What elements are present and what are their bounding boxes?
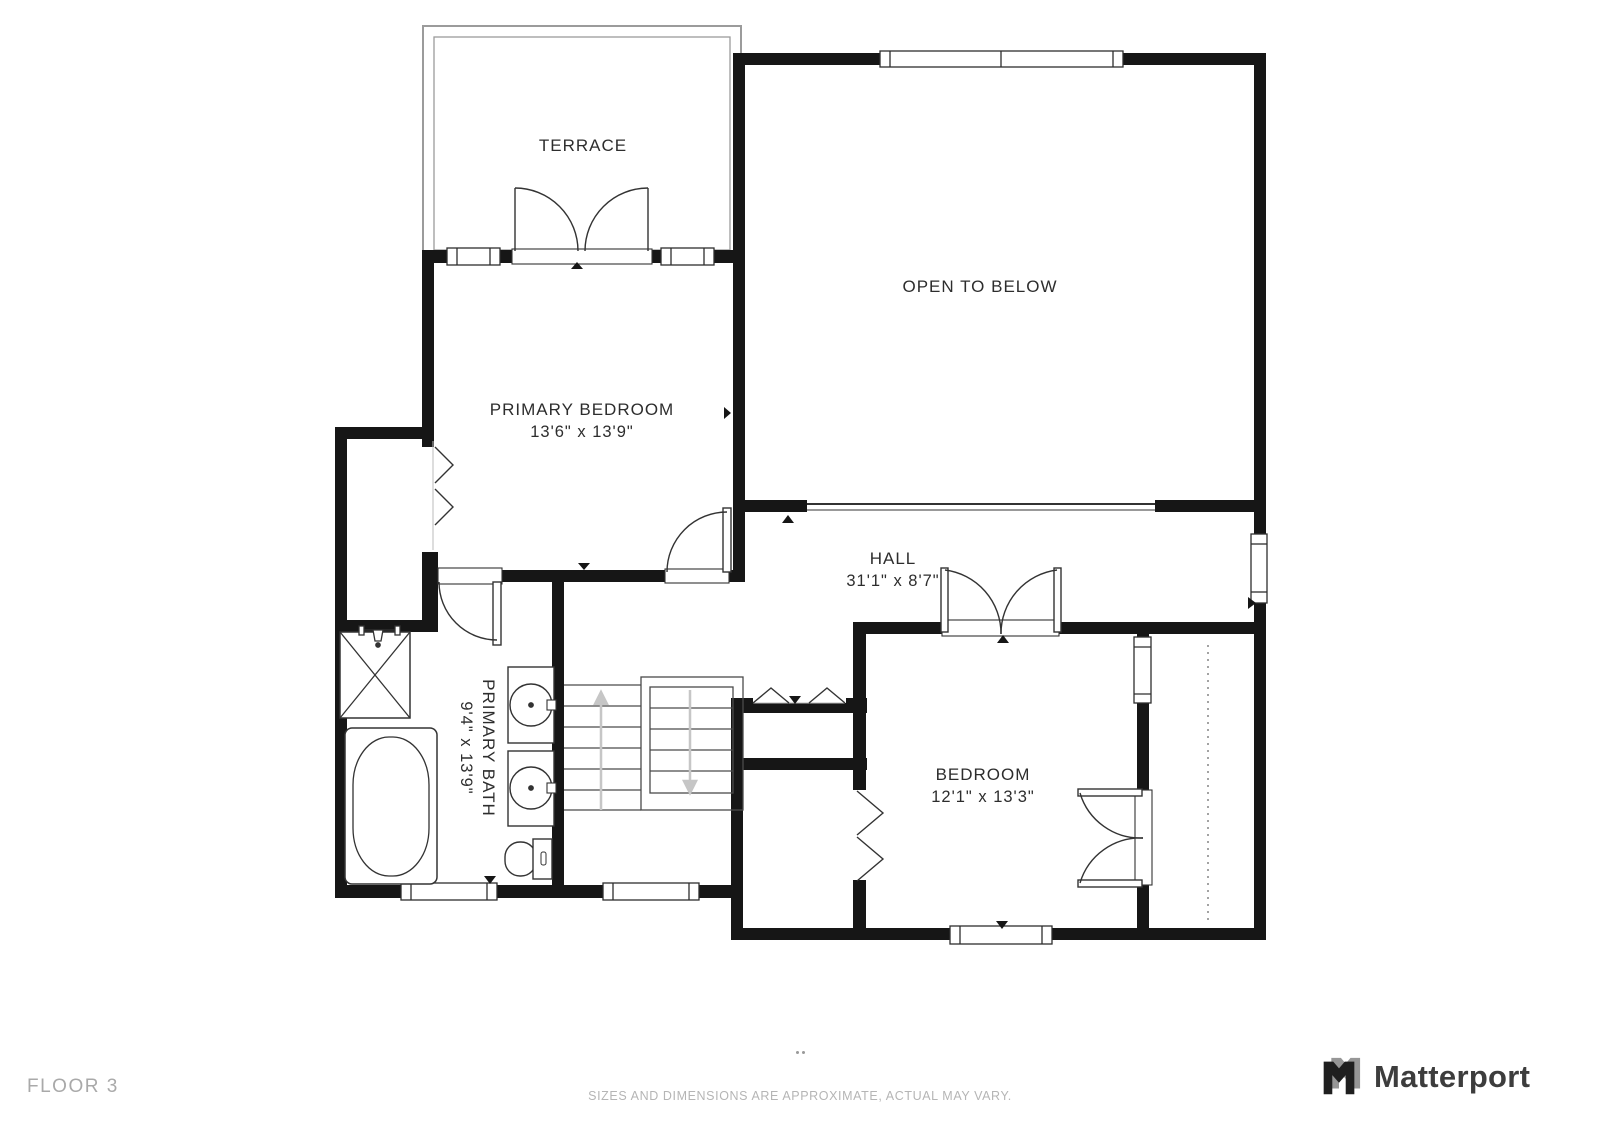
terrace-french-doors xyxy=(515,188,648,251)
matterport-logo-icon xyxy=(1316,1054,1362,1100)
floorplan-page: TERRACE PRIMARY BEDROOM 13'6" x 13'9" OP… xyxy=(0,0,1600,1130)
toilet xyxy=(505,839,552,879)
bathtub xyxy=(345,728,437,884)
primary-bath-door xyxy=(439,582,501,645)
bath-fixtures xyxy=(340,626,556,884)
primary-bath-label: PRIMARY BATH 9'4" x 13'9" xyxy=(455,679,499,817)
bath-window-left xyxy=(401,883,497,900)
bath-window-right xyxy=(603,883,699,900)
artifact-dot xyxy=(802,1051,805,1054)
primary-bath-dimensions: 9'4" x 13'9" xyxy=(455,679,477,817)
floorplan-drawing xyxy=(0,0,1600,1130)
hall-label: HALL 31'1" x 8'7" xyxy=(846,548,939,592)
bedroom-bottom-window xyxy=(950,926,1052,944)
staircase xyxy=(564,677,743,810)
matterport-wordmark: Matterport xyxy=(1374,1059,1530,1095)
artifact-dot xyxy=(796,1051,799,1054)
bedroom-closet-french-doors xyxy=(1078,789,1143,887)
terrace-label: TERRACE xyxy=(539,135,627,157)
bedroom-right-window xyxy=(1134,637,1151,703)
open-below-top-window xyxy=(880,51,1123,67)
hall-closet-accordion xyxy=(753,688,845,704)
primary-bedroom-door-jamb xyxy=(665,569,729,583)
primary-bedroom-dimensions: 13'6" x 13'9" xyxy=(490,421,674,443)
vanity-sink-1 xyxy=(508,667,556,743)
open-to-below-label: OPEN TO BELOW xyxy=(902,276,1057,298)
disclaimer-text: SIZES AND DIMENSIONS ARE APPROXIMATE, AC… xyxy=(588,1089,1012,1103)
primary-bedroom-label: PRIMARY BEDROOM 13'6" x 13'9" xyxy=(490,399,674,443)
terrace-window-right xyxy=(661,248,714,265)
bedroom-west-bifold xyxy=(857,791,883,881)
matterport-brand: Matterport xyxy=(1316,1054,1530,1100)
vanity-sink-2 xyxy=(508,751,556,826)
railing xyxy=(807,504,1155,510)
floor-label: FLOOR 3 xyxy=(27,1076,119,1098)
bedroom-label: BEDROOM 12'1" x 13'3" xyxy=(931,764,1035,808)
terrace-window-left xyxy=(447,248,500,265)
primary-bedroom-door xyxy=(667,508,731,572)
bedroom-dimensions: 12'1" x 13'3" xyxy=(931,786,1035,808)
hall-right-window xyxy=(1251,534,1267,603)
shower xyxy=(340,626,410,718)
terrace-door-jamb xyxy=(512,249,652,264)
hall-dimensions: 31'1" x 8'7" xyxy=(846,570,939,592)
primary-closet-bifold xyxy=(433,441,453,550)
bifold-doors xyxy=(433,441,883,881)
